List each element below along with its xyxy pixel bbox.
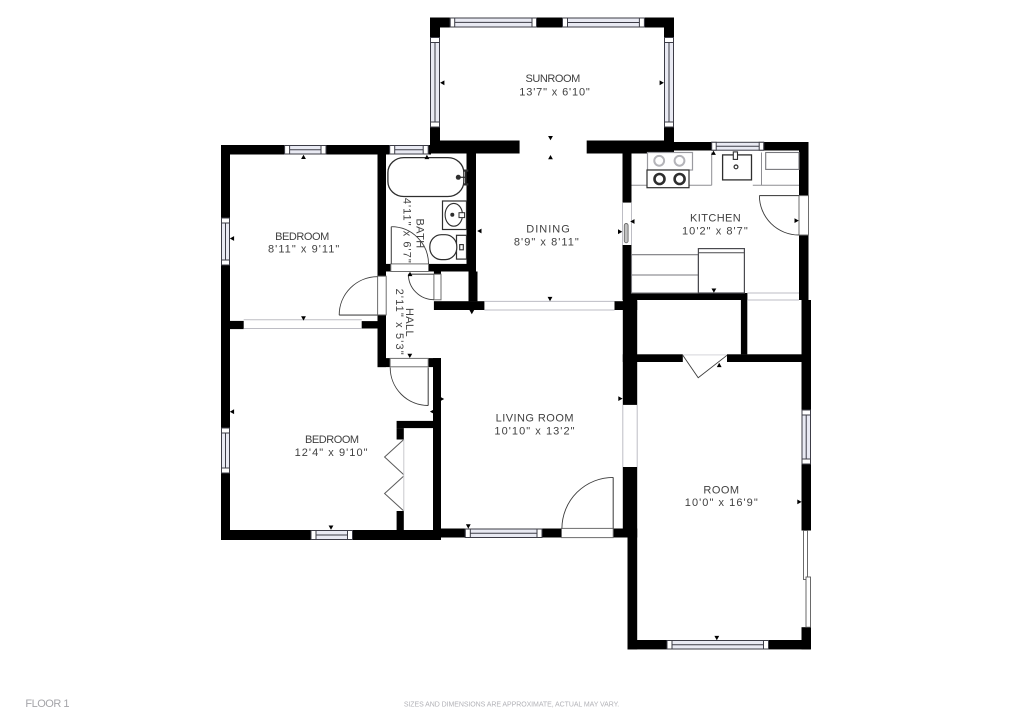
svg-text:13'7" x 6'10": 13'7" x 6'10"	[519, 86, 590, 98]
svg-text:BEDROOM: BEDROOM	[275, 231, 329, 243]
svg-text:SUNROOM: SUNROOM	[526, 73, 581, 85]
svg-text:BEDROOM: BEDROOM	[305, 434, 359, 446]
svg-text:KITCHEN: KITCHEN	[690, 213, 741, 225]
svg-text:SIZES AND DIMENSIONS ARE APPRO: SIZES AND DIMENSIONS ARE APPROXIMATE, AC…	[404, 702, 619, 709]
svg-text:8'9" x 8'11": 8'9" x 8'11"	[514, 236, 580, 248]
svg-text:LIVING ROOM: LIVING ROOM	[496, 413, 574, 425]
svg-text:12'4" x 9'10": 12'4" x 9'10"	[295, 447, 369, 459]
svg-text:ROOM: ROOM	[703, 485, 739, 497]
svg-text:BATH: BATH	[414, 218, 426, 248]
svg-text:10'0" x 16'9": 10'0" x 16'9"	[685, 497, 759, 509]
svg-text:DINING: DINING	[526, 224, 571, 236]
svg-text:10'10" x 13'2": 10'10" x 13'2"	[494, 426, 575, 438]
svg-text:2'11" x 5'3": 2'11" x 5'3"	[393, 289, 405, 356]
svg-text:FLOOR 1: FLOOR 1	[25, 698, 69, 710]
svg-text:4'11" x 6'7": 4'11" x 6'7"	[400, 198, 412, 264]
svg-text:10'2" x 8'7": 10'2" x 8'7"	[682, 225, 749, 237]
svg-text:8'11" x 9'11": 8'11" x 9'11"	[268, 244, 340, 256]
